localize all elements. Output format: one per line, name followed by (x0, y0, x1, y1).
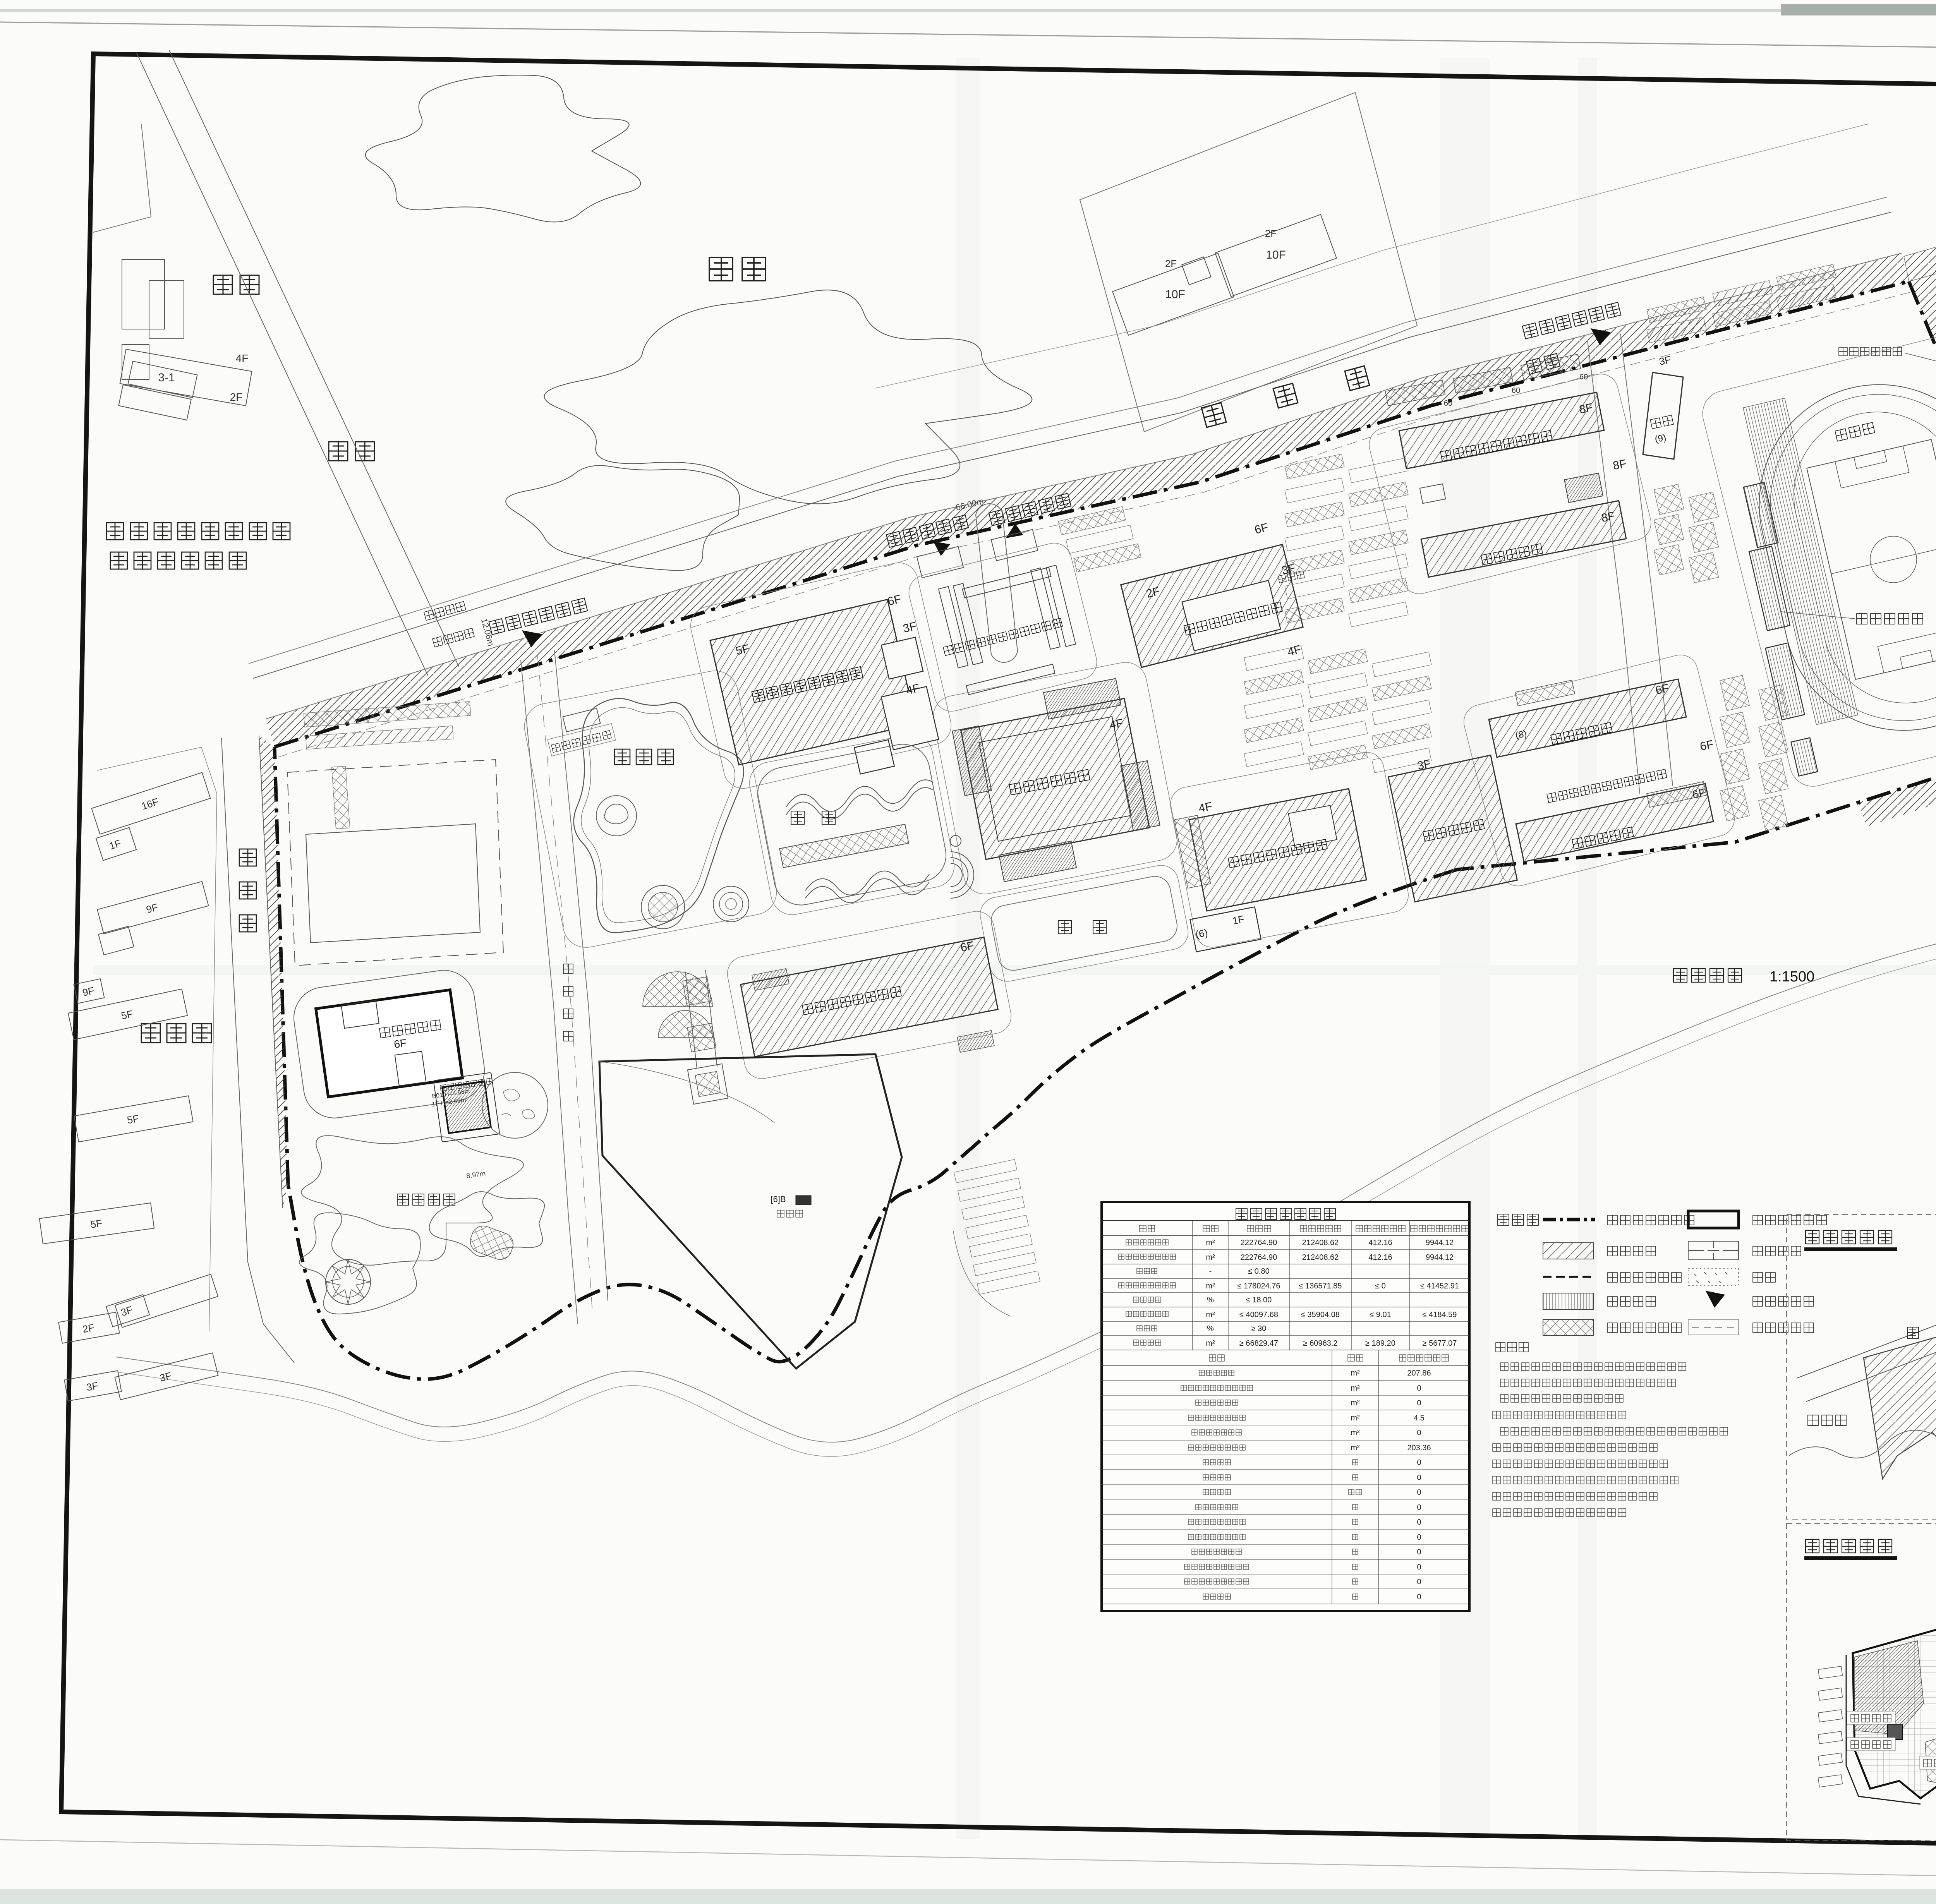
svg-text:1F: 1F (1232, 913, 1246, 927)
svg-text:4.5: 4.5 (1414, 1414, 1425, 1422)
svg-text:2F: 2F (1265, 228, 1277, 239)
svg-text:8F: 8F (1600, 509, 1616, 525)
svg-text:5F: 5F (90, 1217, 103, 1230)
svg-text:0: 0 (1417, 1503, 1421, 1512)
svg-text:≤ 9.01: ≤ 9.01 (1370, 1311, 1391, 1319)
svg-text:222764.90: 222764.90 (1241, 1238, 1277, 1247)
svg-text:≥ 30: ≥ 30 (1251, 1324, 1267, 1333)
svg-text:3F: 3F (86, 1380, 99, 1393)
svg-text:10F: 10F (1165, 288, 1185, 301)
svg-text:0: 0 (1417, 1399, 1421, 1407)
svg-text:412.16: 412.16 (1368, 1253, 1392, 1262)
svg-text:0: 0 (1417, 1488, 1421, 1497)
svg-text:≤ 136571.85: ≤ 136571.85 (1299, 1282, 1342, 1290)
svg-text:m²: m² (1206, 1282, 1215, 1290)
svg-text:2F: 2F (1165, 258, 1177, 269)
svg-text:60: 60 (1512, 386, 1520, 395)
svg-text:212408.62: 212408.62 (1302, 1238, 1339, 1247)
svg-text:≥ 5677.07: ≥ 5677.07 (1423, 1339, 1457, 1348)
svg-text:≥ 189.20: ≥ 189.20 (1365, 1339, 1395, 1348)
svg-text:222764.90: 222764.90 (1241, 1253, 1277, 1262)
svg-text:1:1500: 1:1500 (1770, 969, 1814, 985)
svg-text:0: 0 (1417, 1578, 1421, 1586)
svg-text:≤ 0: ≤ 0 (1375, 1282, 1386, 1290)
svg-text:2F: 2F (230, 391, 243, 403)
svg-text:3F: 3F (1658, 353, 1672, 367)
svg-text:4F: 4F (1109, 717, 1124, 732)
svg-text:m²: m² (1351, 1444, 1360, 1452)
svg-text:0: 0 (1417, 1533, 1421, 1542)
svg-text:0: 0 (1417, 1458, 1421, 1467)
svg-text:m²: m² (1206, 1253, 1215, 1262)
svg-text:m²: m² (1351, 1399, 1360, 1407)
svg-text:60: 60 (1444, 399, 1452, 408)
svg-text:0: 0 (1417, 1593, 1421, 1601)
svg-text:m²: m² (1351, 1384, 1360, 1393)
svg-text:8F: 8F (1578, 401, 1594, 416)
svg-text:60: 60 (1579, 373, 1588, 381)
svg-text:%: % (1207, 1324, 1214, 1333)
svg-text:6F: 6F (959, 939, 975, 954)
svg-text:m²: m² (1351, 1414, 1360, 1422)
svg-text:m²: m² (1206, 1238, 1215, 1247)
svg-text:≤ 35904.08: ≤ 35904.08 (1301, 1311, 1340, 1319)
svg-text:9944.12: 9944.12 (1426, 1238, 1454, 1247)
svg-text:m²: m² (1206, 1311, 1215, 1319)
svg-text:203.36: 203.36 (1407, 1444, 1431, 1452)
svg-text:-: - (1209, 1267, 1212, 1276)
svg-text:≥ 66829.47: ≥ 66829.47 (1239, 1339, 1278, 1348)
svg-text:(6): (6) (1195, 926, 1209, 940)
svg-text:m²: m² (1351, 1369, 1360, 1377)
svg-text:m²: m² (1206, 1339, 1215, 1348)
svg-text:≤ 0.80: ≤ 0.80 (1248, 1267, 1269, 1276)
svg-text:0: 0 (1417, 1384, 1421, 1393)
svg-text:≥ 60963.2: ≥ 60963.2 (1303, 1339, 1338, 1348)
svg-text:≤ 18.00: ≤ 18.00 (1246, 1296, 1272, 1304)
svg-text:212408.62: 212408.62 (1302, 1253, 1339, 1262)
svg-text:0: 0 (1417, 1563, 1421, 1571)
svg-text:5F: 5F (126, 1113, 140, 1126)
svg-text:2F: 2F (82, 1322, 95, 1335)
svg-text:207.86: 207.86 (1407, 1369, 1431, 1377)
svg-text:3-1: 3-1 (158, 371, 175, 384)
svg-text:10F: 10F (1266, 249, 1286, 261)
svg-text:412.16: 412.16 (1368, 1238, 1392, 1247)
svg-text:0: 0 (1417, 1548, 1421, 1556)
svg-text:4F: 4F (1198, 800, 1213, 815)
svg-text:[6]B: [6]B (771, 1194, 786, 1204)
svg-text:6F: 6F (393, 1037, 407, 1050)
svg-text:5F: 5F (120, 1008, 134, 1022)
svg-text:0: 0 (1417, 1518, 1421, 1527)
svg-text:≤ 40097.68: ≤ 40097.68 (1239, 1311, 1278, 1319)
svg-text:4F: 4F (236, 352, 249, 364)
svg-text:≤ 41452.91: ≤ 41452.91 (1420, 1282, 1459, 1290)
svg-text:9944.12: 9944.12 (1426, 1253, 1454, 1262)
svg-text:m²: m² (1351, 1429, 1360, 1437)
svg-text:9F: 9F (81, 985, 95, 998)
svg-text:≤ 178024.76: ≤ 178024.76 (1237, 1282, 1280, 1290)
svg-text:0: 0 (1417, 1473, 1421, 1482)
svg-text:%: % (1207, 1296, 1214, 1304)
svg-text:≤ 4184.59: ≤ 4184.59 (1423, 1311, 1457, 1319)
svg-text:8F: 8F (1612, 457, 1628, 472)
svg-text:0: 0 (1417, 1429, 1421, 1437)
